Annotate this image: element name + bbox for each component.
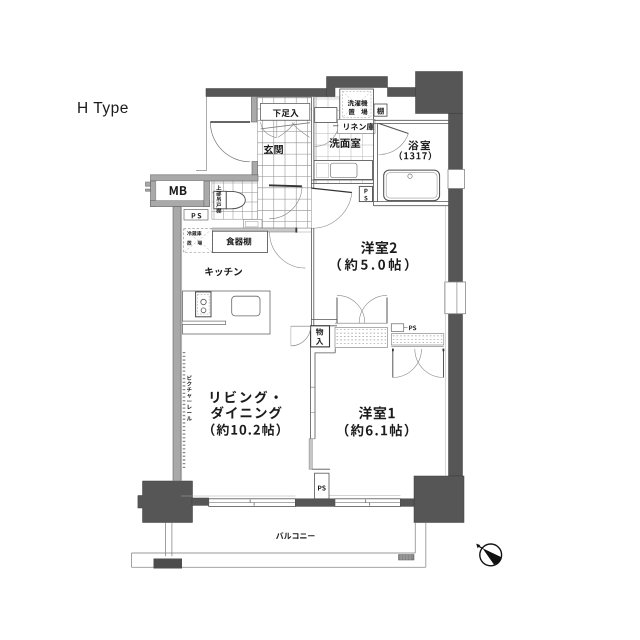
svg-text:H Type: H Type: [77, 100, 129, 117]
